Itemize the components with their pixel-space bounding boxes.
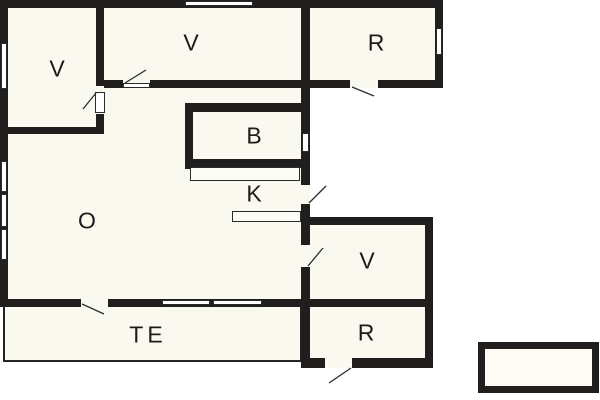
room-label-te-terrace: TE	[129, 324, 166, 347]
swing-entry-right-line	[309, 186, 326, 203]
door-swing-overlay	[0, 0, 600, 400]
swing-terrace-line	[82, 304, 104, 314]
swing-r-bottom-line	[329, 368, 351, 383]
swing-r-top-line	[352, 87, 374, 96]
room-label-v-bottom-right: V	[359, 250, 374, 273]
swing-v-top-line	[125, 70, 146, 83]
room-label-r-bottom-right: R	[358, 322, 375, 345]
room-label-o-living: O	[78, 210, 96, 233]
room-label-r-top-right: R	[368, 32, 385, 55]
room-label-b-bath: B	[246, 125, 261, 148]
swing-v-bottom-line	[308, 248, 323, 266]
swing-vestibule-line	[83, 93, 96, 109]
floor-plan: VVRBKOVRTE	[0, 0, 600, 400]
room-label-k-kitchen: K	[246, 183, 261, 206]
room-label-v-top-middle: V	[183, 32, 198, 55]
room-label-v-top-left: V	[49, 58, 64, 81]
